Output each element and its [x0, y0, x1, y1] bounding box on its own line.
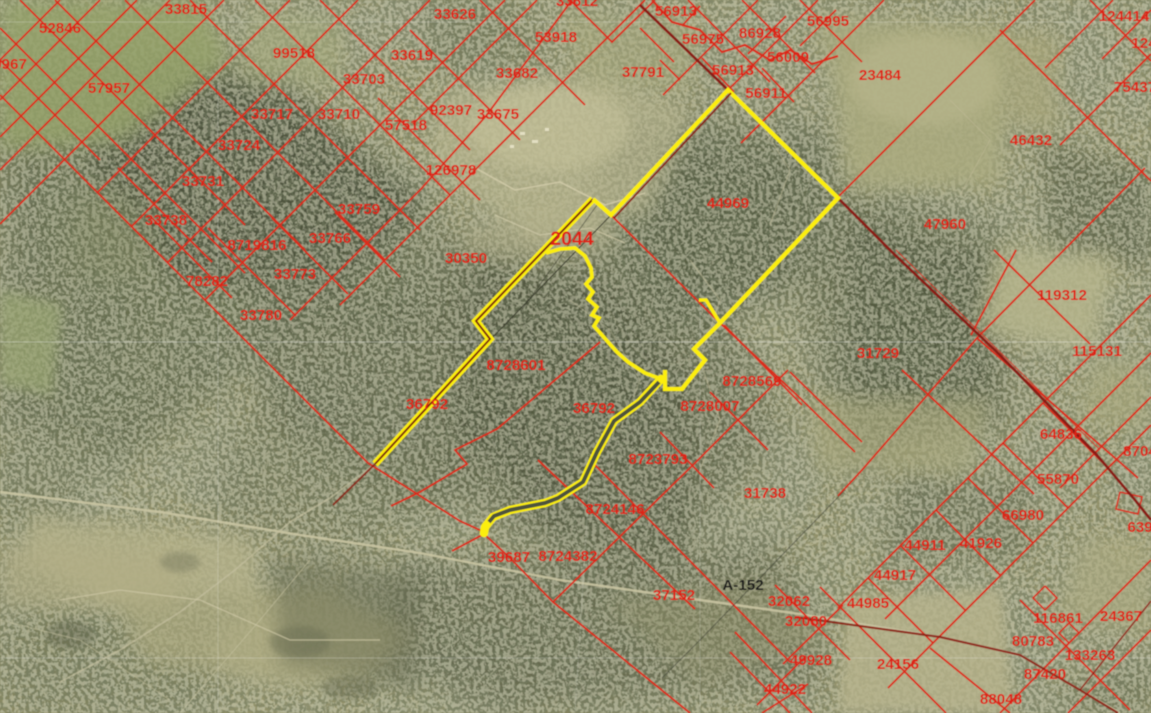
svg-text:33710: 33710 — [318, 106, 360, 123]
svg-text:33738: 33738 — [145, 212, 187, 229]
svg-text:86928: 86928 — [739, 25, 781, 42]
svg-text:66980: 66980 — [1002, 507, 1044, 524]
svg-text:87420: 87420 — [1024, 666, 1066, 683]
svg-text:47960: 47960 — [924, 216, 966, 233]
svg-text:8719816: 8719816 — [227, 237, 286, 254]
svg-text:52846: 52846 — [39, 20, 81, 37]
svg-text:2044: 2044 — [550, 228, 594, 250]
svg-text:53918: 53918 — [535, 29, 577, 46]
svg-text:8728007: 8728007 — [680, 398, 739, 415]
svg-text:44911: 44911 — [904, 537, 946, 554]
svg-text:8724382: 8724382 — [538, 548, 597, 565]
svg-text:8723793: 8723793 — [628, 451, 687, 468]
svg-text:56913: 56913 — [712, 62, 754, 79]
svg-text:36792: 36792 — [406, 396, 448, 413]
svg-text:99518: 99518 — [273, 45, 315, 62]
svg-text:78282: 78282 — [186, 273, 228, 290]
svg-text:33717: 33717 — [251, 106, 293, 123]
svg-text:24156: 24156 — [877, 656, 919, 673]
svg-text:33675: 33675 — [477, 106, 520, 123]
svg-text:56975: 56975 — [682, 31, 725, 48]
svg-text:33731: 33731 — [182, 173, 225, 190]
svg-text:80783: 80783 — [1012, 633, 1054, 650]
svg-text:56911: 56911 — [745, 85, 787, 102]
svg-text:44922: 44922 — [764, 681, 806, 698]
svg-text:33766: 33766 — [309, 230, 351, 247]
svg-text:36792: 36792 — [573, 400, 615, 417]
svg-text:124414: 124414 — [1099, 8, 1150, 25]
svg-text:41926: 41926 — [960, 535, 1002, 552]
svg-text:8728601: 8728601 — [486, 357, 546, 374]
svg-text:56913: 56913 — [655, 3, 697, 20]
svg-text:56009: 56009 — [767, 49, 809, 66]
svg-text:32062: 32062 — [768, 593, 810, 610]
svg-text:133263: 133263 — [1065, 647, 1116, 664]
svg-text:639: 639 — [1127, 519, 1151, 536]
svg-text:39687: 39687 — [488, 549, 530, 566]
svg-text:33759: 33759 — [338, 201, 380, 218]
svg-text:30350: 30350 — [445, 250, 487, 267]
svg-text:33612: 33612 — [556, 0, 598, 10]
svg-text:126978: 126978 — [426, 162, 477, 179]
svg-text:33815: 33815 — [165, 1, 208, 18]
svg-text:46432: 46432 — [1010, 132, 1052, 149]
svg-text:23484: 23484 — [859, 67, 902, 84]
svg-text:92397: 92397 — [430, 102, 472, 119]
svg-text:44917: 44917 — [874, 567, 916, 584]
svg-text:116861: 116861 — [1033, 610, 1083, 627]
svg-text:119312: 119312 — [1037, 287, 1087, 304]
svg-text:31738: 31738 — [744, 485, 786, 502]
svg-text:8724146: 8724146 — [585, 501, 644, 518]
svg-text:33682: 33682 — [496, 65, 538, 82]
svg-text:33780: 33780 — [240, 307, 282, 324]
svg-text:64836: 64836 — [1040, 426, 1082, 443]
svg-text:37152: 37152 — [653, 587, 695, 604]
svg-text:33703: 33703 — [343, 71, 385, 88]
svg-text:33724: 33724 — [218, 137, 261, 154]
svg-text:88048: 88048 — [980, 691, 1022, 708]
svg-text:56995: 56995 — [807, 13, 850, 30]
svg-text:31729: 31729 — [857, 345, 899, 362]
svg-text:44985: 44985 — [847, 595, 890, 612]
svg-text:8728569: 8728569 — [722, 373, 781, 390]
svg-text:124: 124 — [1131, 35, 1151, 52]
svg-text:0967: 0967 — [0, 56, 27, 73]
svg-text:33773: 33773 — [274, 266, 316, 283]
svg-text:32080: 32080 — [785, 613, 827, 630]
svg-text:37791: 37791 — [622, 64, 665, 81]
svg-text:A-152: A-152 — [722, 577, 763, 594]
svg-text:44969: 44969 — [707, 195, 749, 212]
svg-text:33619: 33619 — [391, 47, 433, 64]
svg-text:33626: 33626 — [434, 6, 476, 23]
svg-text:75437: 75437 — [1114, 79, 1151, 96]
svg-text:55870: 55870 — [1037, 471, 1079, 488]
svg-text:57957: 57957 — [88, 80, 130, 97]
svg-text:115131: 115131 — [1072, 343, 1122, 360]
svg-text:57518: 57518 — [385, 117, 427, 134]
svg-text:8704: 8704 — [1123, 443, 1151, 460]
svg-text:24367: 24367 — [1100, 608, 1142, 625]
svg-text:49928: 49928 — [790, 652, 832, 669]
